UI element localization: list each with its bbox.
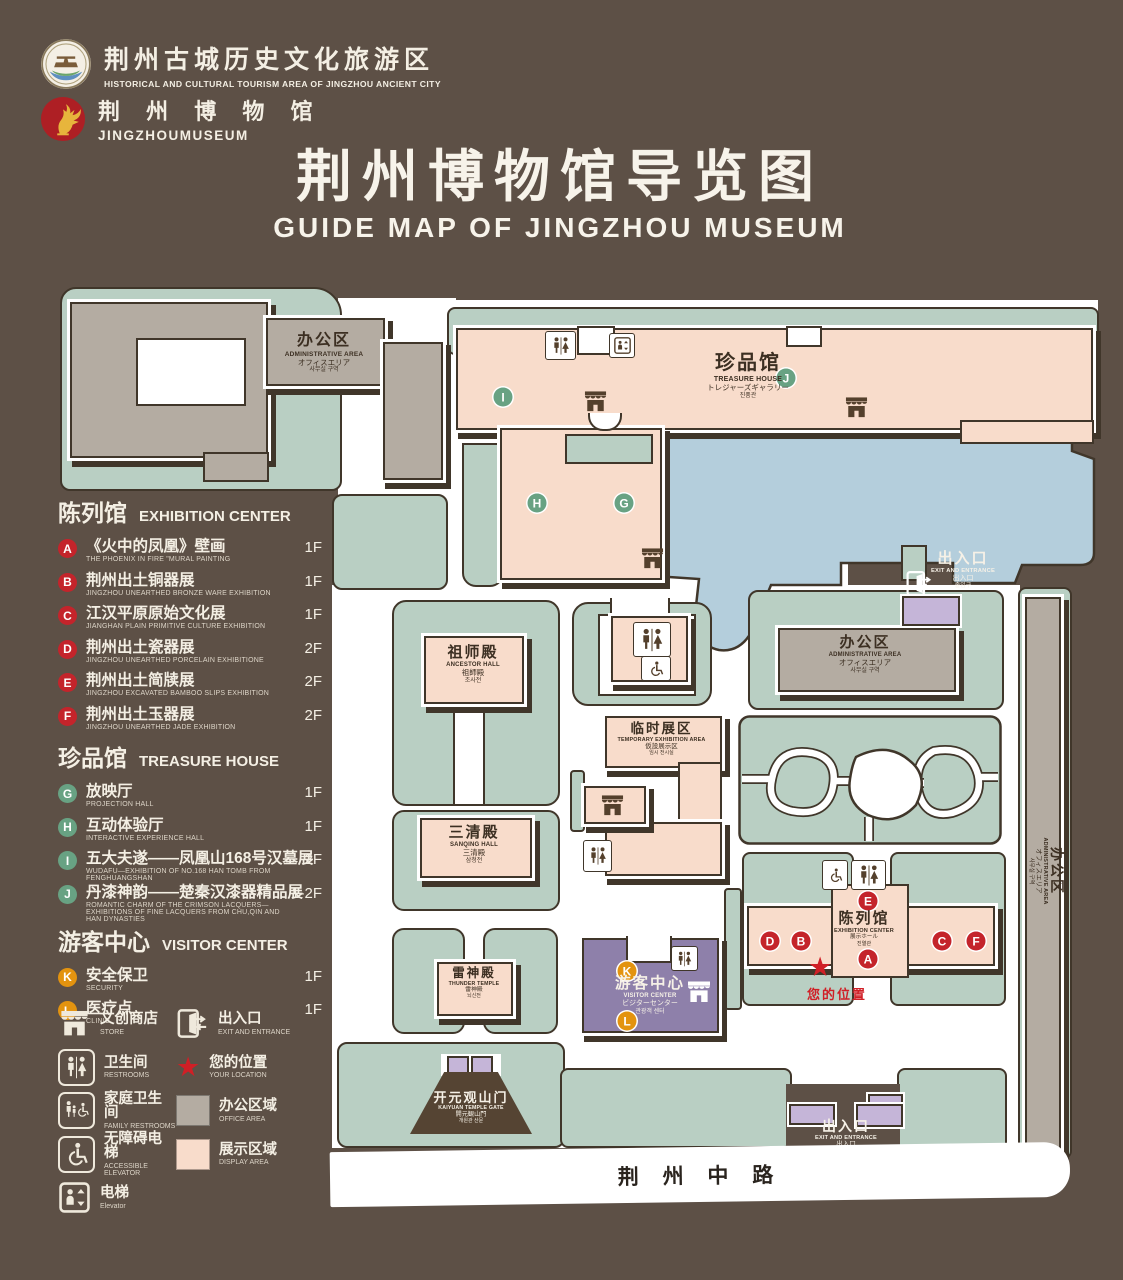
restroom-opening [610, 598, 670, 616]
symbol-label-en: DISPLAY AREA [219, 1159, 277, 1166]
symbol-label-en: OFFICE AREA [219, 1116, 277, 1123]
symbol-label-zh: 出入口 [218, 1012, 290, 1027]
legend-badge: I [58, 851, 77, 870]
label-line-ko: 사무실 구역 [780, 668, 950, 675]
label-visitor-center: 游客中心VISITOR CENTERビジターセンター관광객 센터 [598, 975, 702, 1016]
badge-f: F [967, 932, 986, 951]
legend-item-G: G放映厅PROJECTION HALL1F [58, 783, 324, 817]
legend-item-en: JINGZHOU UNEARTHED JADE EXHIBITION [86, 724, 281, 731]
road-name: 荆 州 中 路 [618, 1158, 783, 1190]
symbol-label-en: Elevator [100, 1203, 129, 1210]
your-location-star: ★ [808, 954, 832, 981]
label-treasure-house: 珍品馆TREASURE HOUSEトレジャーズギャラリー진품관 [668, 352, 828, 400]
legend-badge: J [58, 885, 77, 904]
treasure-notch [786, 326, 822, 347]
section-title-en: EXHIBITION CENTER [139, 508, 291, 525]
legend-item-en: PROJECTION HALL [86, 801, 281, 808]
label-line-ko: 삼청전 [422, 858, 526, 865]
store-icon [640, 547, 665, 570]
legend-item-floor: 1F [304, 784, 322, 801]
legend-badge: H [58, 818, 77, 837]
legend-item-zh: 互动体验厅 [86, 817, 324, 834]
legend-item-en: JINGZHOU EXCAVATED BAMBOO SLIPS EXHIBITI… [86, 690, 281, 697]
label-line-zh: 祖师殿 [426, 644, 520, 662]
label-line-ko: 개원관 산문 [415, 1119, 527, 1125]
store-icon [58, 1007, 91, 1040]
page-subtitle: GUIDE MAP OF JINGZHOU MUSEUM [160, 212, 960, 244]
label-line-ko: 사무실 구역 [266, 367, 382, 374]
section-title-en: VISITOR CENTER [162, 937, 288, 954]
legend-section-exhibition-center: 陈列馆EXHIBITION CENTERA《火中的凤凰》壁画THE PHOENI… [58, 494, 324, 739]
guide-map-page: { "header": { "logo1": {"zh": "荆州古城历史文化旅… [0, 0, 1123, 1280]
legend-item-floor: 1F [304, 606, 322, 623]
label-kaiyuan-gate: 开元观山门KAIYUAN TEMPLE GATE開元観山門개원관 산문 [415, 1090, 527, 1125]
badge-a: A [859, 950, 878, 969]
label-thunder-temple: 雷神殿THUNDER TEMPLE雷神殿뇌신전 [439, 966, 509, 1000]
legend-item-floor: 2F [304, 851, 322, 868]
legend-item-floor: 1F [304, 1001, 322, 1018]
legend-item-floor: 1-2F [291, 885, 322, 902]
legend-badge: G [58, 784, 77, 803]
symbol-label-en: ACCESSIBLE ELEVATOR [104, 1163, 176, 1177]
your-location-icon: ★ [176, 1054, 200, 1081]
admin-nw-tab [203, 452, 269, 482]
label-line-zh: 办公区 [266, 332, 382, 351]
legend-item-zh: 《火中的凤凰》壁画 [86, 538, 324, 555]
legend-item-floor: 1F [304, 818, 322, 835]
restrooms-icon [583, 840, 612, 872]
legend-item-floor: 2F [304, 640, 322, 657]
legend-item-D: D荆州出土瓷器展JINGZHOU UNEARTHED PORCELAIN EXH… [58, 639, 324, 673]
lawn-sliver [570, 770, 585, 832]
legend-item-en: JINGZHOU UNEARTHED PORCELAIN EXHIBITIONE [86, 657, 281, 664]
legend-symbol-store-icon: 文创商店STORE [58, 1002, 176, 1046]
symbol-label-zh: 卫生间 [104, 1056, 149, 1071]
label-line-zh: 三清殿 [422, 824, 526, 842]
symbol-label-zh: 展示区域 [219, 1143, 277, 1158]
legend-item-zh: 江汉平原原始文化展 [86, 605, 324, 622]
symbol-label-en: RESTROOMS [104, 1072, 149, 1079]
legend-item-K: K安全保卫SECURITY1F [58, 967, 324, 1001]
symbol-label-zh: 您的位置 [209, 1056, 267, 1071]
store-icon [600, 794, 625, 817]
treasure-inner-lawn [565, 434, 653, 464]
legend-item-floor: 1F [304, 968, 322, 985]
label-line-ko: 출입구 [925, 583, 1001, 590]
tourism-area-logo-icon [40, 38, 92, 90]
legend-item-floor: 1F [304, 539, 322, 556]
label-line-zh: 开元观山门 [415, 1090, 527, 1105]
label-line-ja: オフィスエリア [1034, 761, 1042, 981]
legend-symbol-office-area-swatch: 办公区域OFFICE AREA [176, 1089, 298, 1133]
legend-item-H: H互动体验厅INTERACTIVE EXPERIENCE HALL1F [58, 817, 324, 851]
legend-item-floor: 1F [304, 573, 322, 590]
label-line-ja: 出入口 [925, 575, 1001, 583]
legend-symbol-your-location-icon: ★您的位置YOUR LOCATION [176, 1046, 298, 1090]
label-admin-nw: 办公区ADMINISTRATIVE AREAオフィスエリア사무실 구역 [266, 332, 382, 374]
section-title-en: TREASURE HOUSE [139, 753, 279, 770]
symbol-label-en: YOUR LOCATION [209, 1072, 267, 1079]
section-title-zh: 珍品馆 [58, 739, 127, 773]
label-line-ja: トレジャーズギャラリー [668, 384, 828, 393]
label-line-ko: 임시 전시실 [606, 751, 717, 757]
lawn-sliver [724, 888, 742, 1010]
lawn-south-mid [560, 1068, 792, 1148]
badge-i: I [494, 388, 513, 407]
legend-badge: B [58, 573, 77, 592]
label-admin-strip: 办公区ADMINISTRATIVE AREAオフィスエリア사무실 구역 [1019, 761, 1065, 981]
label-sanqing-hall: 三清殿SANQING HALL三清殿삼청전 [422, 824, 526, 865]
gate-ne [902, 596, 960, 626]
label-line-ja: 展示ホール [812, 934, 916, 941]
lawn-strip [462, 443, 504, 587]
legend-item-en: INTERACTIVE EXPERIENCE HALL [86, 835, 281, 842]
label-line-ko: 진품관 [668, 393, 828, 400]
legend-section-treasure-house: 珍品馆TREASURE HOUSEG放映厅PROJECTION HALL1FH互… [58, 739, 324, 923]
legend-item-zh: 放映厅 [86, 783, 324, 800]
legend-section-header: 游客中心VISITOR CENTER [58, 923, 324, 957]
legend-item-en: ROMANTIC CHARM OF THE CRIMSON LACQUERS—E… [86, 902, 281, 923]
badge-c: C [933, 932, 952, 951]
path-ancestor [453, 702, 485, 806]
temporary-exhibition-bottom [605, 822, 722, 876]
label-ancestor-hall: 祖师殿ANCESTOR HALL祖師殿조사전 [426, 644, 520, 685]
label-line-ja: 祖師殿 [426, 669, 520, 678]
label-line-zh: 办公区 [780, 634, 950, 652]
visitor-center-notch [626, 936, 672, 963]
page-title: 荆州博物馆导览图 [160, 132, 960, 213]
legend-item-zh: 五大夫遂——凤凰山168号汉墓展 [86, 850, 324, 867]
road: 荆 州 中 路 [330, 1142, 1071, 1207]
restrooms-icon [58, 1049, 95, 1086]
label-line-zh: 出入口 [925, 550, 1001, 568]
legend-item-F: F荆州出土玉器展JINGZHOU UNEARTHED JADE EXHIBITI… [58, 706, 324, 740]
legend-symbol-exit-entrance-icon: 出入口EXIT AND ENTRANCE [176, 1002, 298, 1046]
tourism-area-logo-row: 荆州古城历史文化旅游区 HISTORICAL AND CULTURAL TOUR… [40, 38, 441, 90]
label-line-ja: オフィスエリア [780, 659, 950, 668]
tourism-area-logo-zh: 荆州古城历史文化旅游区 [104, 40, 441, 76]
garden [738, 715, 1002, 845]
admin-nw-wing2 [383, 342, 443, 480]
legend-item-floor: 2F [304, 673, 322, 690]
tourism-area-logo-en: HISTORICAL AND CULTURAL TOURISM AREA OF … [104, 79, 441, 89]
label-line-ko: 조사전 [426, 678, 520, 685]
legend-item-I: I五大夫遂——凤凰山168号汉墓展WUDAFU—EXHIBITION OF NO… [58, 850, 324, 884]
restrooms-icon [633, 622, 671, 657]
legend-badge: F [58, 707, 77, 726]
restrooms-icon [671, 946, 698, 971]
label-admin-east: 办公区ADMINISTRATIVE AREAオフィスエリア사무실 구역 [780, 634, 950, 675]
accessible-icon [641, 656, 671, 681]
legend-item-en: JIANGHAN PLAIN PRIMITIVE CULTURE EXHIBIT… [86, 623, 281, 630]
legend-item-zh: 荆州出土玉器展 [86, 706, 324, 723]
legend-sections: 陈列馆EXHIBITION CENTERA《火中的凤凰》壁画THE PHOENI… [58, 494, 324, 1034]
legend-badge: D [58, 640, 77, 659]
legend-symbols: 文创商店STORE出入口EXIT AND ENTRANCE卫生间RESTROOM… [58, 1002, 298, 1220]
label-line-en: THUNDER TEMPLE [439, 981, 509, 987]
symbol-label-zh: 办公区域 [219, 1099, 277, 1114]
symbol-label-zh: 电梯 [100, 1186, 129, 1201]
symbol-label-en: EXIT AND ENTRANCE [218, 1029, 290, 1036]
label-line-ko: 사무실 구역 [1028, 761, 1034, 981]
admin-nw-courtyard [136, 338, 246, 406]
label-line-zh: 珍品馆 [668, 352, 828, 376]
lawn-south-east [897, 1068, 1007, 1152]
label-line-en: EXIT AND ENTRANCE [925, 568, 1001, 575]
badge-b: B [792, 932, 811, 951]
label-line-ja: 三清殿 [422, 849, 526, 858]
label-line-zh: 办公区 [1048, 761, 1065, 981]
legend-symbol-accessible-elevator-icon: 无障碍电梯ACCESSIBLE ELEVATOR [58, 1133, 176, 1177]
symbol-label-zh: 无障碍电梯 [104, 1132, 176, 1161]
badge-h: H [528, 494, 547, 513]
label-line-zh: 雷神殿 [439, 966, 509, 981]
legend-item-zh: 荆州出土铜器展 [86, 572, 324, 589]
display-area-swatch [176, 1139, 210, 1170]
legend-item-A: A《火中的凤凰》壁画THE PHOENIX IN FIRE "MURAL PAI… [58, 538, 324, 572]
legend-item-B: B荆州出土铜器展JINGZHOU UNEARTHED BRONZE WARE E… [58, 572, 324, 606]
office-area-swatch [176, 1095, 210, 1126]
label-exit-ne: 出入口EXIT AND ENTRANCE出入口출입구 [925, 550, 1001, 590]
label-line-ja: ビジターセンター [598, 1000, 702, 1008]
lawn-left [332, 494, 448, 590]
legend-item-E: E荆州出土简牍展JINGZHOU EXCAVATED BAMBOO SLIPS … [58, 672, 324, 706]
badge-d: D [761, 932, 780, 951]
legend-item-zh: 丹漆神韵——楚秦汉漆器精品展 [86, 884, 324, 901]
store-icon [583, 390, 608, 413]
museum-logo-zh: 荆 州 博 物 馆 [98, 94, 322, 126]
symbol-label-zh: 文创商店 [100, 1012, 158, 1027]
label-line-en: ADMINISTRATIVE AREA [1042, 761, 1048, 981]
legend-item-en: JINGZHOU UNEARTHED BRONZE WARE EXHIBITIO… [86, 590, 281, 597]
treasure-house-step [960, 420, 1094, 444]
legend-item-floor: 2F [304, 707, 322, 724]
symbol-label-zh: 家庭卫生间 [104, 1092, 176, 1121]
legend-symbol-display-area-swatch: 展示区域DISPLAY AREA [176, 1133, 298, 1177]
accessible-elevator-icon [822, 860, 848, 890]
exit-entrance-icon [176, 1007, 209, 1040]
legend-item-en: SECURITY [86, 985, 281, 992]
section-title-zh: 陈列馆 [58, 494, 127, 528]
badge-g: G [615, 494, 634, 513]
legend-badge: A [58, 539, 77, 558]
accessible-elevator-icon [58, 1136, 95, 1173]
label-line-zh: 陈列馆 [812, 910, 916, 928]
legend-item-zh: 安全保卫 [86, 967, 324, 984]
restrooms-icon [851, 860, 886, 890]
legend-badge: C [58, 606, 77, 625]
label-line-ko: 뇌신전 [439, 994, 509, 1000]
restrooms-icon [545, 331, 576, 360]
legend-symbol-elevator-icon: 电梯Elevator [58, 1176, 176, 1220]
legend-section-header: 珍品馆TREASURE HOUSE [58, 739, 324, 773]
symbol-label-en: STORE [100, 1029, 158, 1036]
section-title-zh: 游客中心 [58, 923, 150, 957]
legend-badge: K [58, 968, 77, 987]
label-line-ko: 관광객 센터 [598, 1009, 702, 1016]
label-temporary-exhibition: 临时展区TEMPORARY EXHIBITION AREA仮設展示区임시 전시실 [606, 721, 717, 757]
label-line-zh: 出入口 [806, 1118, 886, 1135]
legend-item-C: C江汉平原原始文化展JIANGHAN PLAIN PRIMITIVE CULTU… [58, 605, 324, 639]
legend-item-en: WUDAFU—EXHIBITION OF NO.168 HAN TOMB FRO… [86, 868, 281, 882]
legend-item-zh: 荆州出土瓷器展 [86, 639, 324, 656]
legend-item-en: THE PHOENIX IN FIRE "MURAL PAINTING [86, 556, 281, 563]
badge-e: E [859, 892, 878, 911]
symbol-label-en: FAMILY RESTROOMS [104, 1123, 176, 1130]
label-line-zh: 临时展区 [606, 721, 717, 737]
label-exhibition-center: 陈列馆EXHIBITION CENTER展示ホール진열관 [812, 910, 916, 947]
legend-item-zh: 荆州出土简牍展 [86, 672, 324, 689]
legend-symbol-restrooms-icon: 卫生间RESTROOMS [58, 1046, 176, 1090]
store-icon [844, 396, 869, 419]
legend-section-header: 陈列馆EXHIBITION CENTER [58, 494, 324, 528]
elevator-icon [58, 1181, 91, 1214]
family-restrooms-icon [58, 1092, 95, 1129]
legend-item-J: J丹漆神韵——楚秦汉漆器精品展ROMANTIC CHARM OF THE CRI… [58, 884, 324, 923]
label-line-ko: 진열관 [812, 941, 916, 947]
label-line-zh: 游客中心 [598, 975, 702, 993]
legend-badge: E [58, 673, 77, 692]
elevator-icon [609, 333, 635, 358]
museum-logo-icon [40, 96, 86, 142]
your-location-label: 您的位置 [792, 984, 882, 1003]
legend-symbol-family-restrooms-icon: 家庭卫生间FAMILY RESTROOMS [58, 1089, 176, 1133]
